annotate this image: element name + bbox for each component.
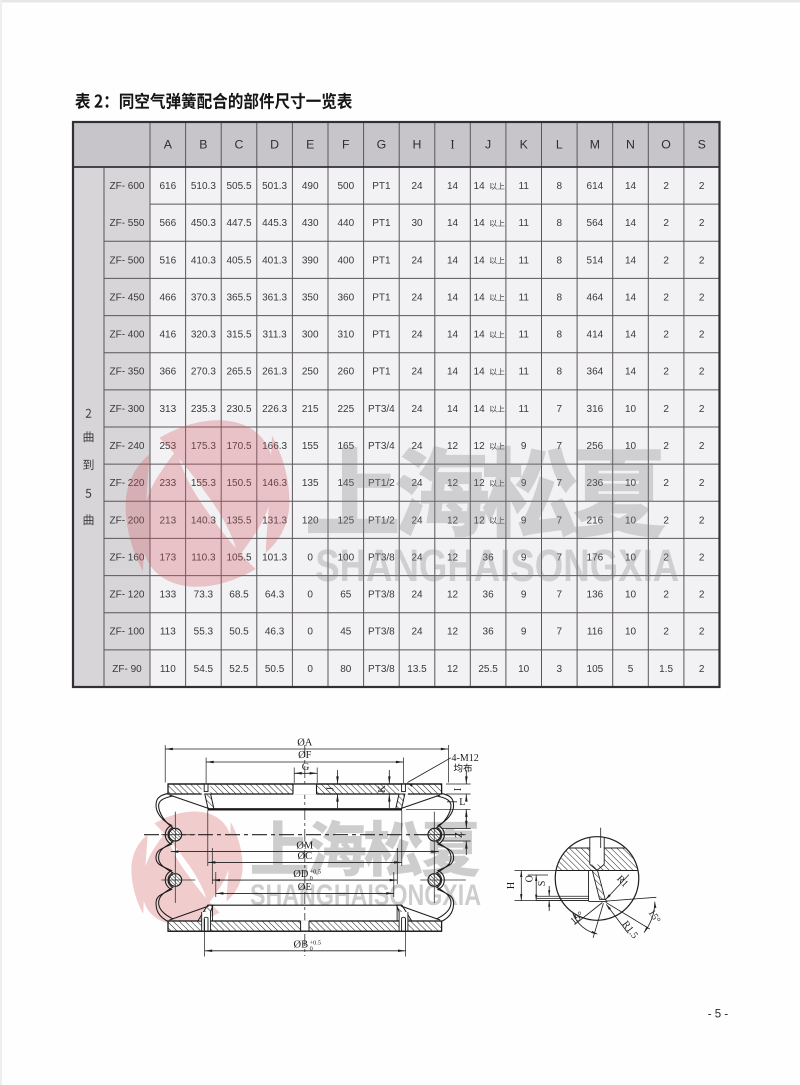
svg-text:135: 135: [302, 478, 319, 489]
svg-text:4-M12: 4-M12: [452, 753, 479, 764]
svg-text:ØC: ØC: [298, 851, 313, 862]
svg-text:10: 10: [625, 627, 637, 638]
svg-text:2: 2: [699, 478, 705, 489]
svg-text:13.5: 13.5: [407, 664, 427, 675]
svg-text:2: 2: [699, 404, 705, 415]
svg-text:225: 225: [337, 404, 354, 415]
svg-text:516: 516: [159, 255, 176, 266]
svg-text:F: F: [342, 138, 350, 152]
svg-text:H: H: [506, 882, 517, 889]
svg-text:G: G: [377, 138, 387, 152]
svg-text:14: 14: [447, 367, 459, 378]
svg-text:J: J: [485, 138, 491, 152]
svg-text:2: 2: [699, 627, 705, 638]
svg-text:SHANGHAISONGXIA: SHANGHAISONGXIA: [250, 879, 481, 912]
svg-text:14: 14: [625, 255, 637, 266]
svg-text:320.3: 320.3: [191, 330, 216, 341]
svg-text:ZF- 500: ZF- 500: [109, 255, 144, 266]
svg-text:25.5: 25.5: [478, 664, 498, 675]
svg-text:O: O: [525, 875, 536, 882]
svg-text:514: 514: [587, 255, 604, 266]
svg-text:500: 500: [337, 181, 354, 192]
svg-text:PT3/4: PT3/4: [368, 404, 395, 415]
svg-text:15°: 15°: [645, 908, 662, 926]
svg-text:366: 366: [159, 367, 176, 378]
svg-text:410.3: 410.3: [191, 255, 216, 266]
svg-text:2: 2: [663, 590, 669, 601]
svg-text:ZF- 550: ZF- 550: [109, 218, 144, 229]
svg-text:14: 14: [447, 255, 459, 266]
svg-text:9: 9: [521, 441, 527, 452]
svg-text:430: 430: [302, 218, 319, 229]
svg-text:370.3: 370.3: [191, 292, 216, 303]
svg-text:S: S: [537, 881, 548, 887]
svg-text:0: 0: [307, 552, 313, 563]
svg-text:10: 10: [625, 590, 637, 601]
svg-text:ZF- 90: ZF- 90: [112, 664, 142, 675]
svg-text:401.3: 401.3: [262, 255, 287, 266]
svg-text:390: 390: [302, 255, 319, 266]
svg-text:12: 12: [447, 441, 459, 452]
svg-text:PT1: PT1: [372, 218, 391, 229]
svg-text:I: I: [450, 138, 454, 152]
svg-text:30: 30: [411, 218, 423, 229]
svg-text:11: 11: [519, 330, 530, 341]
svg-text:2: 2: [699, 552, 705, 563]
svg-text:7: 7: [557, 404, 563, 415]
svg-text:316: 316: [587, 404, 604, 415]
svg-text:8: 8: [557, 181, 563, 192]
svg-text:24: 24: [411, 590, 423, 601]
svg-text:K: K: [377, 785, 388, 793]
svg-text:230.5: 230.5: [226, 404, 251, 415]
svg-text:136: 136: [587, 590, 604, 601]
svg-text:K: K: [520, 138, 529, 152]
svg-text:315.5: 315.5: [226, 330, 251, 341]
svg-text:50.5: 50.5: [265, 664, 285, 675]
svg-text:616: 616: [159, 181, 176, 192]
svg-text:A: A: [164, 138, 173, 152]
svg-text:G: G: [302, 762, 310, 773]
svg-text:52.5: 52.5: [229, 664, 249, 675]
svg-text:O: O: [661, 138, 671, 152]
svg-text:614: 614: [587, 181, 604, 192]
svg-text:2: 2: [699, 664, 705, 675]
svg-text:350: 350: [302, 292, 319, 303]
svg-text:S: S: [698, 138, 706, 152]
svg-text:113: 113: [160, 627, 176, 638]
svg-text:2: 2: [663, 441, 669, 452]
svg-text:ØD: ØD: [293, 869, 309, 880]
svg-text:E: E: [306, 138, 314, 152]
svg-text:45: 45: [340, 627, 352, 638]
svg-text:14: 14: [474, 181, 486, 192]
svg-text:L: L: [556, 138, 563, 152]
svg-text:566: 566: [159, 218, 176, 229]
svg-text:400: 400: [337, 255, 354, 266]
svg-text:3: 3: [557, 664, 563, 675]
svg-text:PT1: PT1: [372, 292, 391, 303]
svg-text:14: 14: [625, 292, 637, 303]
svg-text:B: B: [199, 138, 207, 152]
svg-text:2: 2: [663, 404, 669, 415]
svg-text:24: 24: [411, 255, 423, 266]
svg-text:R1.5: R1.5: [620, 919, 640, 941]
svg-text:ZF- 100: ZF- 100: [109, 627, 144, 638]
svg-text:265.5: 265.5: [226, 367, 251, 378]
svg-text:510.3: 510.3: [191, 181, 216, 192]
svg-text:2: 2: [663, 181, 669, 192]
svg-text:12: 12: [447, 664, 459, 675]
svg-text:- 5 -: - 5 -: [708, 1009, 729, 1021]
svg-text:55.3: 55.3: [194, 627, 214, 638]
svg-text:445.3: 445.3: [262, 218, 287, 229]
svg-text:250: 250: [302, 367, 319, 378]
svg-text:N: N: [626, 138, 635, 152]
svg-text:73.3: 73.3: [194, 590, 214, 601]
svg-text:PT1: PT1: [372, 330, 391, 341]
svg-text:101.3: 101.3: [262, 552, 287, 563]
svg-text:416: 416: [159, 330, 176, 341]
svg-text:365.5: 365.5: [226, 292, 251, 303]
svg-text:235.3: 235.3: [191, 404, 216, 415]
svg-text:8: 8: [557, 218, 563, 229]
svg-text:24: 24: [411, 627, 423, 638]
svg-text:M: M: [590, 138, 600, 152]
svg-text:11: 11: [519, 181, 530, 192]
svg-text:ØA: ØA: [297, 738, 313, 749]
svg-text:8: 8: [557, 330, 563, 341]
svg-text:24: 24: [411, 367, 423, 378]
svg-text:10: 10: [518, 664, 530, 675]
svg-text:450.3: 450.3: [191, 218, 216, 229]
svg-text:2: 2: [699, 292, 705, 303]
svg-text:ØM: ØM: [296, 840, 314, 851]
svg-text:ØF: ØF: [298, 750, 312, 761]
svg-text:Z: Z: [454, 832, 465, 838]
svg-text:14: 14: [474, 330, 486, 341]
svg-text:364: 364: [587, 367, 604, 378]
svg-text:SHANGHAISONGXIA: SHANGHAISONGXIA: [315, 540, 679, 591]
svg-text:14: 14: [447, 181, 459, 192]
svg-text:2: 2: [699, 441, 705, 452]
svg-text:9: 9: [521, 627, 527, 638]
svg-text:14: 14: [447, 292, 459, 303]
svg-text:300: 300: [302, 330, 319, 341]
svg-text:501.3: 501.3: [262, 181, 287, 192]
svg-text:2: 2: [663, 627, 669, 638]
svg-text:414: 414: [587, 330, 604, 341]
svg-text:PT3/8: PT3/8: [368, 627, 395, 638]
svg-text:440: 440: [337, 218, 354, 229]
svg-text:2: 2: [699, 590, 705, 601]
svg-text:5: 5: [628, 664, 634, 675]
svg-text:8: 8: [557, 255, 563, 266]
svg-text:8: 8: [557, 292, 563, 303]
svg-text:J: J: [325, 787, 336, 791]
svg-text:310: 310: [337, 330, 354, 341]
svg-text:261.3: 261.3: [262, 367, 287, 378]
svg-text:0: 0: [310, 946, 313, 953]
svg-text:11: 11: [519, 404, 530, 415]
svg-text:14: 14: [625, 218, 637, 229]
svg-text:11: 11: [519, 255, 530, 266]
svg-text:PT1: PT1: [372, 181, 391, 192]
svg-text:ZF- 300: ZF- 300: [109, 404, 144, 415]
svg-text:505.5: 505.5: [226, 181, 251, 192]
svg-text:7: 7: [557, 590, 563, 601]
svg-text:H: H: [413, 138, 422, 152]
svg-text:2: 2: [663, 255, 669, 266]
svg-text:C: C: [235, 138, 244, 152]
svg-text:466: 466: [159, 292, 176, 303]
svg-text:110: 110: [160, 664, 176, 675]
svg-text:50.5: 50.5: [229, 627, 249, 638]
svg-text:14: 14: [625, 367, 637, 378]
svg-text:2: 2: [699, 367, 705, 378]
svg-text:133: 133: [159, 590, 176, 601]
svg-text:2: 2: [663, 515, 669, 526]
svg-text:447.5: 447.5: [226, 218, 251, 229]
svg-text:24: 24: [411, 181, 423, 192]
svg-text:24: 24: [411, 404, 423, 415]
svg-text:14: 14: [447, 218, 459, 229]
svg-text:2: 2: [663, 367, 669, 378]
svg-text:0: 0: [307, 627, 313, 638]
svg-text:ZF- 600: ZF- 600: [109, 181, 144, 192]
svg-text:1.5: 1.5: [659, 664, 673, 675]
svg-text:PT1: PT1: [372, 255, 391, 266]
svg-text:2: 2: [663, 330, 669, 341]
svg-text:ZF- 400: ZF- 400: [109, 330, 144, 341]
svg-text:0: 0: [307, 664, 313, 675]
svg-text:11: 11: [519, 367, 530, 378]
svg-text:105: 105: [587, 664, 604, 675]
svg-text:0: 0: [307, 590, 313, 601]
svg-text:260: 260: [337, 367, 354, 378]
svg-text:I: I: [453, 788, 464, 791]
svg-text:24: 24: [411, 330, 423, 341]
svg-text:2: 2: [699, 255, 705, 266]
svg-text:360: 360: [337, 292, 354, 303]
svg-text:PT3/8: PT3/8: [368, 664, 395, 675]
svg-text:270.3: 270.3: [191, 367, 216, 378]
svg-text:361.3: 361.3: [262, 292, 287, 303]
svg-text:313: 313: [159, 404, 176, 415]
svg-text:2: 2: [699, 218, 705, 229]
svg-text:490: 490: [302, 181, 319, 192]
svg-text:PT1: PT1: [372, 367, 391, 378]
svg-text:9: 9: [521, 590, 527, 601]
svg-text:0: 0: [310, 875, 313, 882]
svg-text:12: 12: [447, 590, 459, 601]
svg-text:14: 14: [625, 181, 637, 192]
svg-text:215: 215: [302, 404, 319, 415]
svg-text:PT3/4: PT3/4: [368, 441, 395, 452]
svg-text:D: D: [270, 138, 279, 152]
svg-text:14: 14: [625, 330, 637, 341]
svg-text:54.5: 54.5: [194, 664, 214, 675]
svg-text:564: 564: [587, 218, 604, 229]
svg-text:ØE: ØE: [298, 882, 312, 893]
svg-text:ZF- 120: ZF- 120: [109, 590, 144, 601]
svg-text:405.5: 405.5: [226, 255, 251, 266]
svg-text:14: 14: [474, 218, 486, 229]
svg-text:311.3: 311.3: [262, 330, 287, 341]
svg-text:68.5: 68.5: [229, 590, 249, 601]
svg-text:65: 65: [340, 590, 352, 601]
svg-text:464: 464: [587, 292, 604, 303]
svg-text:155: 155: [302, 441, 319, 452]
svg-text:L: L: [459, 797, 465, 808]
svg-text:2: 2: [663, 292, 669, 303]
svg-text:12: 12: [474, 441, 486, 452]
svg-text:PT3/8: PT3/8: [368, 590, 395, 601]
svg-text:116: 116: [587, 627, 603, 638]
svg-text:10: 10: [625, 404, 637, 415]
svg-text:2: 2: [663, 218, 669, 229]
svg-text:14: 14: [474, 367, 486, 378]
svg-text:12: 12: [447, 627, 459, 638]
svg-text:2: 2: [699, 515, 705, 526]
svg-text:80: 80: [340, 664, 352, 675]
svg-text:36: 36: [483, 627, 495, 638]
svg-text:ZF- 450: ZF- 450: [109, 292, 144, 303]
svg-text:11: 11: [519, 292, 530, 303]
svg-text:2: 2: [699, 181, 705, 192]
svg-text:14: 14: [474, 255, 486, 266]
svg-text:14: 14: [474, 292, 486, 303]
svg-text:14: 14: [447, 330, 459, 341]
svg-text:36: 36: [483, 590, 495, 601]
svg-text:14: 14: [447, 404, 459, 415]
svg-text:226.3: 226.3: [262, 404, 287, 415]
svg-text:ZF- 240: ZF- 240: [109, 441, 144, 452]
svg-text:15°: 15°: [568, 910, 586, 927]
svg-text:8: 8: [557, 367, 563, 378]
svg-text:11: 11: [519, 218, 530, 229]
svg-text:14: 14: [474, 404, 486, 415]
svg-text:7: 7: [557, 627, 563, 638]
svg-text:2: 2: [663, 478, 669, 489]
svg-text:ØB: ØB: [294, 940, 309, 951]
svg-text:ZF- 350: ZF- 350: [109, 367, 144, 378]
svg-text:24: 24: [411, 292, 423, 303]
svg-text:64.3: 64.3: [265, 590, 285, 601]
svg-text:2: 2: [699, 330, 705, 341]
svg-text:46.3: 46.3: [265, 627, 285, 638]
